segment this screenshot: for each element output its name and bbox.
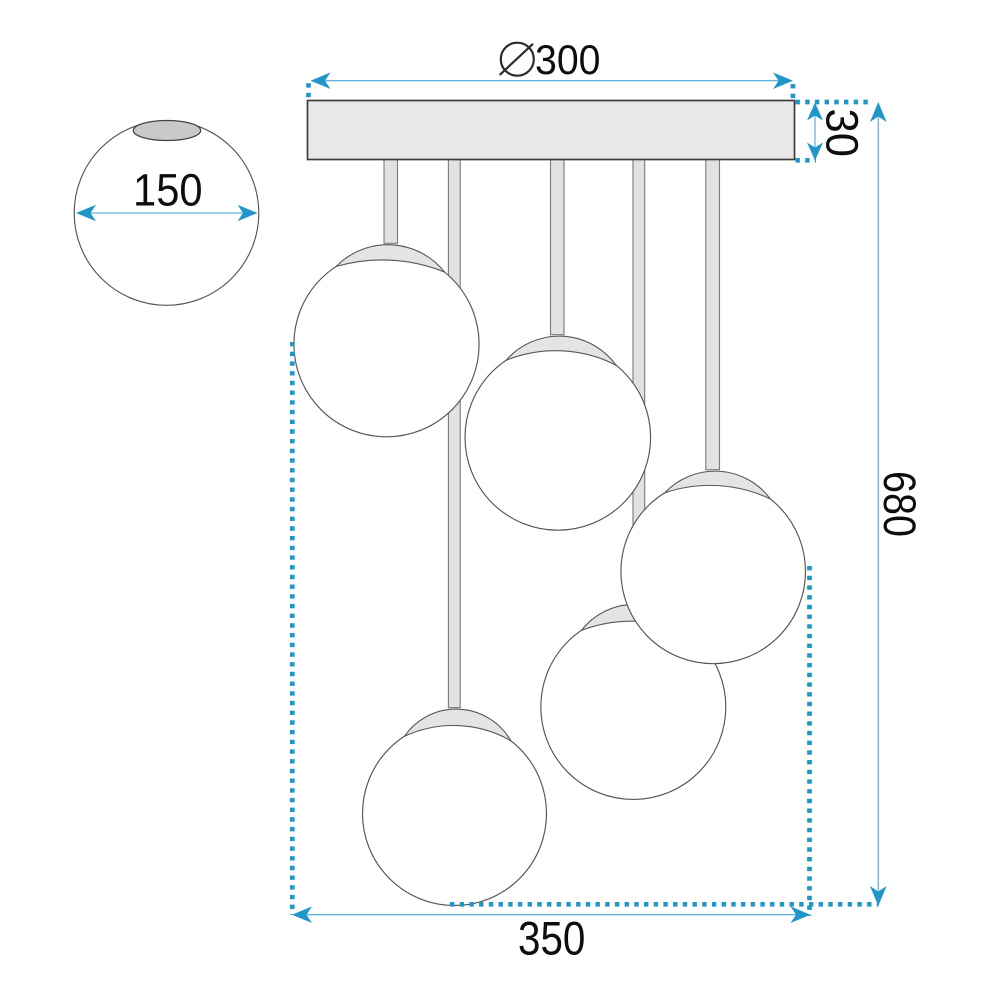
svg-text:150: 150 (133, 165, 203, 216)
svg-text:300: 300 (535, 36, 601, 83)
svg-text:680: 680 (874, 471, 925, 537)
svg-text:350: 350 (518, 912, 585, 965)
svg-text:30: 30 (816, 109, 867, 158)
